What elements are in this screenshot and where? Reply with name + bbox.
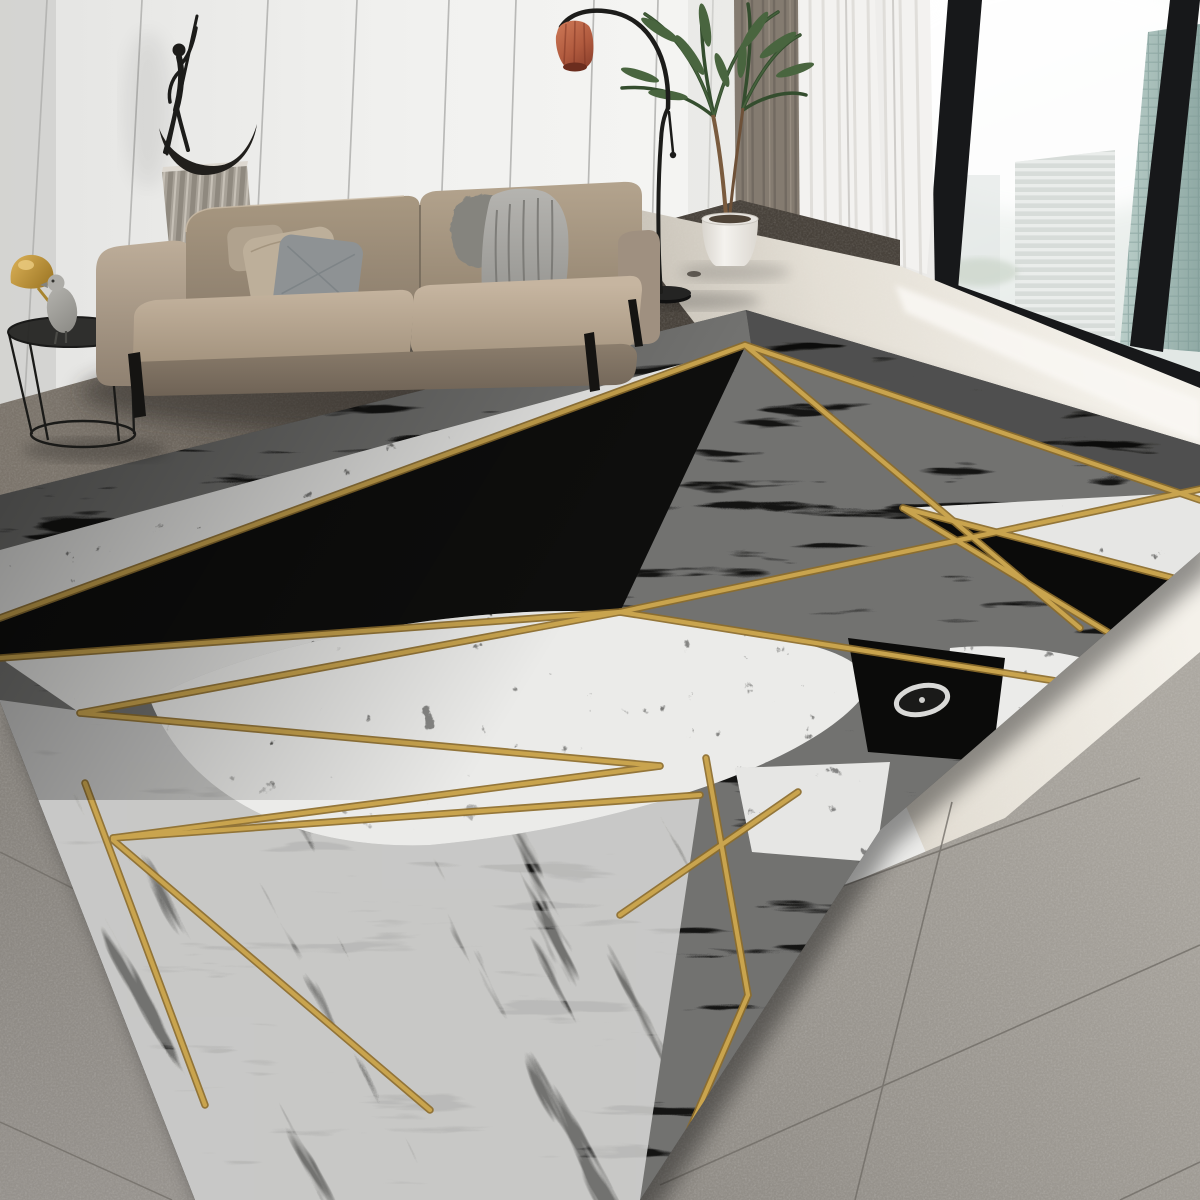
- pot-soil: [709, 215, 751, 223]
- mushroom-shine: [18, 260, 34, 270]
- sofa-seat-right: [411, 276, 642, 356]
- bird-head: [48, 275, 65, 292]
- living-room-product-photo: [0, 0, 1200, 1200]
- lamp-shade-opening: [563, 63, 587, 72]
- scene-canvas: [0, 0, 1200, 1200]
- plant-pot: [702, 219, 758, 267]
- lamp-pull-knob: [670, 152, 676, 158]
- bird-eye: [52, 280, 55, 283]
- sculpture-wall-shadow: [126, 32, 170, 188]
